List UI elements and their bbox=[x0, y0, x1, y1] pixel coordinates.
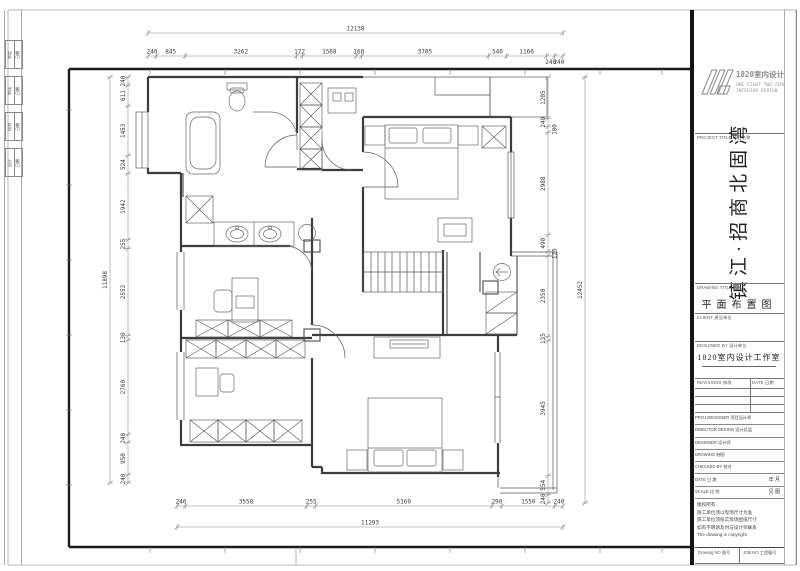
logo-icon bbox=[702, 70, 733, 94]
dim-chain-bottom: 240355825551602901550240 bbox=[175, 499, 566, 510]
column-block bbox=[186, 196, 213, 223]
dim-chain-top-total: 12138 bbox=[146, 26, 566, 37]
wall-junction-blocks bbox=[304, 240, 498, 341]
svg-text:3705: 3705 bbox=[418, 49, 433, 56]
staff-row: DESIGNER 设计师 bbox=[695, 437, 784, 450]
hatched-landing bbox=[486, 292, 517, 313]
svg-text:255: 255 bbox=[120, 238, 127, 249]
drawing-sheet: 12138 2408453262172156816037055401166240… bbox=[0, 0, 800, 571]
wardrobe-strip bbox=[246, 340, 276, 358]
roof-outline bbox=[363, 77, 490, 117]
drawing-title: 平面布置图 bbox=[695, 296, 783, 311]
dim-chain-left: 2406111453524194225525531302760240950240 bbox=[120, 75, 131, 486]
wardrobe-column bbox=[300, 149, 322, 170]
project-title: 镇江·招商北固湾 bbox=[700, 140, 776, 280]
signature-cell: 审核日期 bbox=[5, 76, 23, 105]
wardrobe-strip bbox=[276, 340, 305, 358]
dim-chain-bottom-total: 11293 bbox=[175, 520, 566, 531]
tv-cabinet-icon bbox=[374, 337, 440, 358]
entry-canopy bbox=[490, 77, 547, 117]
svg-text:240: 240 bbox=[120, 75, 127, 86]
dim-chain-right-total: 12452 bbox=[577, 75, 588, 506]
svg-text:240: 240 bbox=[540, 493, 547, 504]
client-label: CLIENT 建设单位 bbox=[697, 315, 732, 321]
staff-row: PROJ.DESIGNER 项目设计师 bbox=[695, 412, 784, 425]
svg-text:3262: 3262 bbox=[234, 49, 249, 56]
staff-row: DRAWING 制图 bbox=[695, 449, 784, 462]
svg-text:5160: 5160 bbox=[396, 499, 411, 506]
nightstand bbox=[347, 450, 367, 470]
wardrobe-strip bbox=[246, 420, 274, 442]
hatched-landing bbox=[486, 313, 517, 334]
title-block-bar bbox=[690, 10, 694, 565]
svg-text:1568: 1568 bbox=[322, 49, 337, 56]
svg-text:845: 845 bbox=[165, 49, 176, 56]
firm-name: 1820室内设计工作室 bbox=[695, 352, 783, 363]
nightstand bbox=[365, 126, 385, 145]
toilet-icon bbox=[227, 83, 247, 111]
svg-text:130: 130 bbox=[120, 332, 127, 343]
number-cells: Drawing NO 图号 JOB NO 工程编号 bbox=[695, 547, 784, 564]
revisions-divider bbox=[750, 378, 751, 412]
svg-text:554: 554 bbox=[540, 480, 547, 491]
wardrobe-strip bbox=[216, 340, 246, 358]
nightstand bbox=[443, 450, 463, 470]
window bbox=[136, 112, 514, 443]
signature-cell: 审定日期 bbox=[5, 40, 23, 69]
stairs-icon bbox=[363, 252, 443, 292]
svg-text:11898: 11898 bbox=[102, 271, 109, 289]
direction-circle-icon bbox=[494, 264, 511, 281]
wardrobe-column bbox=[300, 83, 322, 105]
svg-text:240: 240 bbox=[120, 432, 127, 443]
revisions-label: REVISIONS 修改 bbox=[697, 380, 732, 386]
wardrobe-column bbox=[300, 127, 322, 149]
revisions-date-label: DATE 日期 bbox=[752, 380, 774, 386]
svg-text:12452: 12452 bbox=[577, 281, 584, 299]
desk-bottom-left bbox=[196, 368, 234, 396]
svg-text:12138: 12138 bbox=[346, 26, 364, 33]
svg-text:125: 125 bbox=[552, 248, 559, 259]
title-block: 1820室内设计 ONE EIGHT TWO ZERO INTERIOR DES… bbox=[690, 10, 797, 565]
nightstand bbox=[458, 126, 478, 145]
svg-text:1550: 1550 bbox=[521, 499, 536, 506]
signature-strip: 审定日期 审核日期 校对日期 设计日期 bbox=[4, 10, 22, 565]
logo-cn: 1820室内设计 bbox=[736, 69, 784, 79]
dim-chain-left-total: 11898 bbox=[102, 75, 113, 486]
wardrobe-strip bbox=[218, 420, 246, 442]
staff-row: DIRECTOR DESIGN 设计总监 bbox=[695, 424, 784, 437]
svg-text:180: 180 bbox=[552, 124, 559, 135]
svg-text:3945: 3945 bbox=[540, 401, 547, 416]
svg-text:2350: 2350 bbox=[540, 288, 547, 303]
floor-plan-canvas: 12138 2408453262172156816037055401166240… bbox=[0, 0, 800, 571]
desk-top-bedroom bbox=[438, 218, 472, 242]
drawing-title-label: DRAWING TITLE 图名 bbox=[697, 285, 742, 291]
wardrobe-strip bbox=[186, 340, 216, 358]
signature-cell: 设计日期 bbox=[5, 148, 23, 177]
svg-text:611: 611 bbox=[120, 90, 127, 101]
wardrobe-strip bbox=[228, 320, 260, 337]
svg-text:2553: 2553 bbox=[120, 284, 127, 299]
dresser-icon bbox=[328, 88, 356, 113]
svg-text:950: 950 bbox=[120, 453, 127, 464]
svg-text:524: 524 bbox=[120, 159, 127, 170]
svg-text:1166: 1166 bbox=[519, 49, 534, 56]
svg-text:3558: 3558 bbox=[239, 499, 254, 506]
twin-basin-vanity bbox=[214, 222, 294, 246]
shower-screen bbox=[253, 112, 297, 150]
staff-row: SCALE 比 例见 图 bbox=[695, 486, 784, 499]
floor-plan bbox=[136, 77, 557, 493]
svg-text:240: 240 bbox=[540, 117, 547, 128]
svg-text:INTERIOR DESIGN: INTERIOR DESIGN bbox=[736, 88, 778, 94]
bed-bottom bbox=[347, 398, 463, 472]
walls bbox=[148, 77, 517, 477]
desk-study bbox=[214, 278, 258, 322]
firm-label: DESIGNED BY 设计单位 bbox=[697, 343, 747, 349]
wardrobe-strip bbox=[260, 320, 292, 337]
svg-text:240: 240 bbox=[120, 473, 127, 484]
staff-row: DATE 日 期年 月 bbox=[695, 474, 784, 487]
svg-text:540: 540 bbox=[492, 49, 503, 56]
copyright-notes: 版权所有 施工单位须以现场尺寸为准 施工单位须核实现场图纸尺寸 如有不明请及时与… bbox=[697, 501, 783, 539]
svg-text:11293: 11293 bbox=[361, 520, 379, 527]
svg-text:135: 135 bbox=[540, 333, 547, 344]
bed-top bbox=[365, 125, 478, 199]
wardrobe-column bbox=[300, 105, 322, 127]
svg-text:2760: 2760 bbox=[120, 380, 127, 395]
job-no-label: JOB NO 工程编号 bbox=[740, 548, 784, 563]
bathtub-icon bbox=[186, 112, 220, 174]
svg-text:1942: 1942 bbox=[120, 199, 127, 214]
svg-text:490: 490 bbox=[540, 237, 547, 248]
wardrobe-strip bbox=[196, 320, 228, 337]
svg-text:1205: 1205 bbox=[540, 90, 547, 105]
dim-chain-right: 1205240180298849012523501353945554240 bbox=[540, 75, 559, 506]
wardrobe-strip bbox=[190, 420, 218, 442]
company-logo: 1820室内设计 ONE EIGHT TWO ZERO INTERIOR DES… bbox=[696, 52, 784, 112]
signature-cell: 校对日期 bbox=[5, 112, 23, 141]
svg-text:290: 290 bbox=[491, 499, 502, 506]
staff-row: CHECKED BY 校对 bbox=[695, 461, 784, 474]
dim-chain-top: 2408453262172156816037055401166240240 bbox=[146, 49, 566, 67]
svg-text:ONE EIGHT TWO ZERO: ONE EIGHT TWO ZERO bbox=[736, 82, 784, 88]
svg-text:2988: 2988 bbox=[540, 176, 547, 191]
column-block bbox=[482, 126, 506, 148]
drawing-no-label: Drawing NO 图号 bbox=[695, 548, 740, 563]
svg-text:240: 240 bbox=[553, 59, 564, 66]
wardrobe-strip bbox=[274, 420, 302, 442]
svg-text:1453: 1453 bbox=[120, 123, 127, 138]
